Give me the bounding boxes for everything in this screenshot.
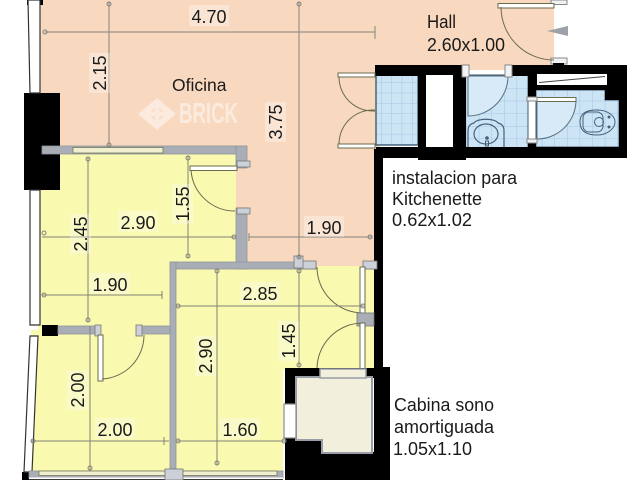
- svg-text:4.70: 4.70: [191, 7, 226, 27]
- svg-text:3.75: 3.75: [266, 104, 286, 139]
- svg-text:0.62x1.02: 0.62x1.02: [392, 209, 472, 230]
- svg-text:1.55: 1.55: [173, 186, 193, 221]
- svg-text:2.85: 2.85: [242, 284, 277, 304]
- svg-text:2.90: 2.90: [196, 338, 216, 373]
- svg-text:Oficina: Oficina: [172, 75, 227, 95]
- svg-text:1.90: 1.90: [306, 218, 341, 238]
- svg-text:2.00: 2.00: [68, 372, 88, 407]
- svg-text:2.60x1.00: 2.60x1.00: [427, 35, 505, 55]
- svg-text:2.45: 2.45: [71, 216, 91, 251]
- svg-text:2.15: 2.15: [90, 55, 110, 90]
- svg-text:Kitchenette: Kitchenette: [392, 188, 482, 209]
- svg-text:1.60: 1.60: [222, 420, 257, 440]
- svg-text:Hall: Hall: [427, 12, 456, 32]
- svg-text:2.90: 2.90: [120, 213, 155, 233]
- svg-text:1.05x1.10: 1.05x1.10: [393, 438, 472, 459]
- svg-text:instalacion para: instalacion para: [392, 167, 518, 188]
- svg-text:1.45: 1.45: [279, 323, 299, 358]
- svg-text:BRICK: BRICK: [179, 98, 238, 130]
- svg-text:2.00: 2.00: [97, 420, 132, 440]
- svg-text:Cabina sono: Cabina sono: [394, 394, 494, 415]
- svg-text:amortiguada: amortiguada: [394, 416, 495, 437]
- svg-text:1.90: 1.90: [92, 275, 127, 295]
